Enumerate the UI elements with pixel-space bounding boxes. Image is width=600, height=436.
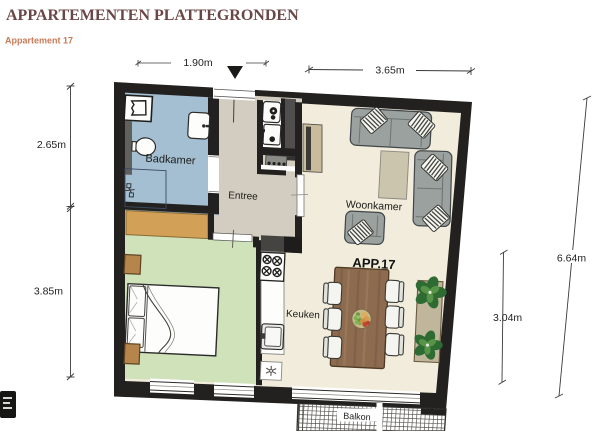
svg-text:1.90m: 1.90m (183, 57, 212, 69)
svg-text:Keuken: Keuken (286, 309, 320, 322)
svg-text:2.65m: 2.65m (37, 139, 66, 151)
svg-text:Balkon: Balkon (343, 411, 371, 422)
svg-text:APPARTEMENTEN PLATTEGRONDEN: APPARTEMENTEN PLATTEGRONDEN (6, 7, 299, 24)
svg-text:3.65m: 3.65m (375, 65, 404, 77)
svg-text:3.85m: 3.85m (34, 286, 63, 298)
svg-text:3.04m: 3.04m (493, 312, 522, 324)
svg-text:Entree: Entree (228, 190, 258, 203)
svg-text:APP.17: APP.17 (352, 255, 396, 272)
svg-text:6.64m: 6.64m (557, 253, 586, 265)
svg-text:Appartement 17: Appartement 17 (5, 36, 73, 46)
